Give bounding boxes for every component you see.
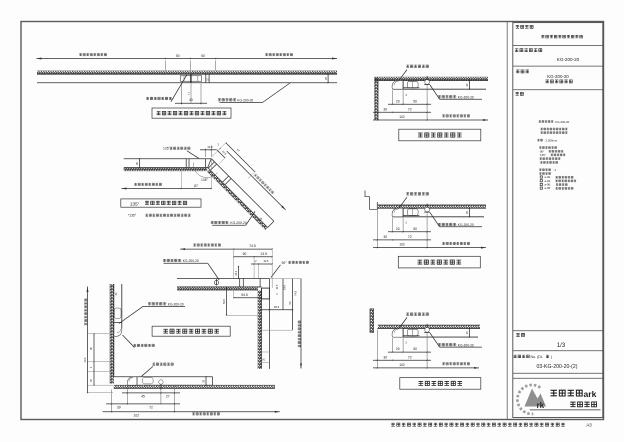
svg-text:20: 20 xyxy=(396,227,400,231)
svg-text:30: 30 xyxy=(383,235,387,239)
svg-text:A3: A3 xyxy=(586,422,592,427)
svg-text:27: 27 xyxy=(166,394,170,398)
svg-text:102: 102 xyxy=(399,243,405,247)
svg-text:54.5: 54.5 xyxy=(241,293,248,297)
svg-text:102: 102 xyxy=(399,115,405,119)
svg-text:1/3: 1/3 xyxy=(557,343,566,349)
svg-text:24.5: 24.5 xyxy=(261,252,268,256)
svg-text:90°: 90° xyxy=(282,261,288,265)
svg-text:72: 72 xyxy=(149,405,153,409)
svg-text:: KG-200-20: : KG-200-20 xyxy=(554,120,570,124)
svg-text:72: 72 xyxy=(408,235,412,239)
svg-text:50: 50 xyxy=(413,227,417,231)
svg-text:KG-200-20: KG-200-20 xyxy=(547,74,569,79)
svg-text:30: 30 xyxy=(383,355,387,359)
svg-text:50: 50 xyxy=(413,99,417,103)
svg-text:102: 102 xyxy=(399,363,405,367)
svg-text:22.5: 22.5 xyxy=(264,260,269,263)
svg-text:74.5: 74.5 xyxy=(249,244,256,248)
svg-text:: KG-200-20: : KG-200-20 xyxy=(181,259,199,263)
svg-text:20.3: 20.3 xyxy=(84,357,87,362)
svg-text:50: 50 xyxy=(176,54,180,58)
svg-text:*135°: *135° xyxy=(128,214,137,218)
svg-text:72: 72 xyxy=(408,107,412,111)
svg-text:50: 50 xyxy=(243,252,247,256)
svg-text:24.9: 24.9 xyxy=(284,284,287,289)
svg-text:135°: 135° xyxy=(130,202,140,207)
svg-text:30: 30 xyxy=(383,107,387,111)
svg-text:a-99:: a-99: xyxy=(545,186,552,190)
svg-text:20: 20 xyxy=(396,99,400,103)
svg-text:54.5: 54.5 xyxy=(222,298,226,304)
svg-text:: 2,000mm: : 2,000mm xyxy=(544,138,558,142)
svg-text:: KG-200-20: : KG-200-20 xyxy=(229,221,247,225)
svg-text:135°: 135° xyxy=(163,147,171,151)
svg-text:rk: rk xyxy=(537,401,545,410)
svg-text:20: 20 xyxy=(396,347,400,351)
svg-text:50: 50 xyxy=(413,347,417,351)
svg-text:: 4: : 4 xyxy=(553,168,557,172)
svg-text:22.5: 22.5 xyxy=(277,284,279,289)
svg-text:74.8: 74.8 xyxy=(294,290,298,296)
svg-text:72: 72 xyxy=(408,355,412,359)
svg-text:25.3: 25.3 xyxy=(235,270,238,275)
svg-text:KG-200-20: KG-200-20 xyxy=(557,57,580,62)
svg-text:39: 39 xyxy=(117,405,121,409)
svg-text:28.3: 28.3 xyxy=(274,305,280,309)
svg-text:): ) xyxy=(551,355,552,359)
svg-text:135°: 135° xyxy=(540,153,546,157)
svg-text:: KG-200-20: : KG-200-20 xyxy=(456,95,474,99)
svg-text:03-KG-200-20-(2): 03-KG-200-20-(2) xyxy=(537,364,578,370)
svg-text:: KG-200-20: : KG-200-20 xyxy=(456,343,474,347)
svg-text:: KG-200-20: : KG-200-20 xyxy=(166,302,184,306)
svg-text:ark: ark xyxy=(584,389,597,399)
svg-text:135°: 135° xyxy=(201,178,209,182)
svg-text:: KG-200-20: : KG-200-20 xyxy=(456,223,474,227)
svg-text:: KG-200-20: : KG-200-20 xyxy=(236,98,254,102)
svg-text:No. (DL: No. (DL xyxy=(531,355,543,359)
svg-text:22.5: 22.5 xyxy=(207,145,213,149)
svg-text:102: 102 xyxy=(134,413,140,417)
svg-text:87: 87 xyxy=(194,184,198,188)
svg-text:50: 50 xyxy=(201,54,205,58)
svg-text:45: 45 xyxy=(141,394,145,398)
